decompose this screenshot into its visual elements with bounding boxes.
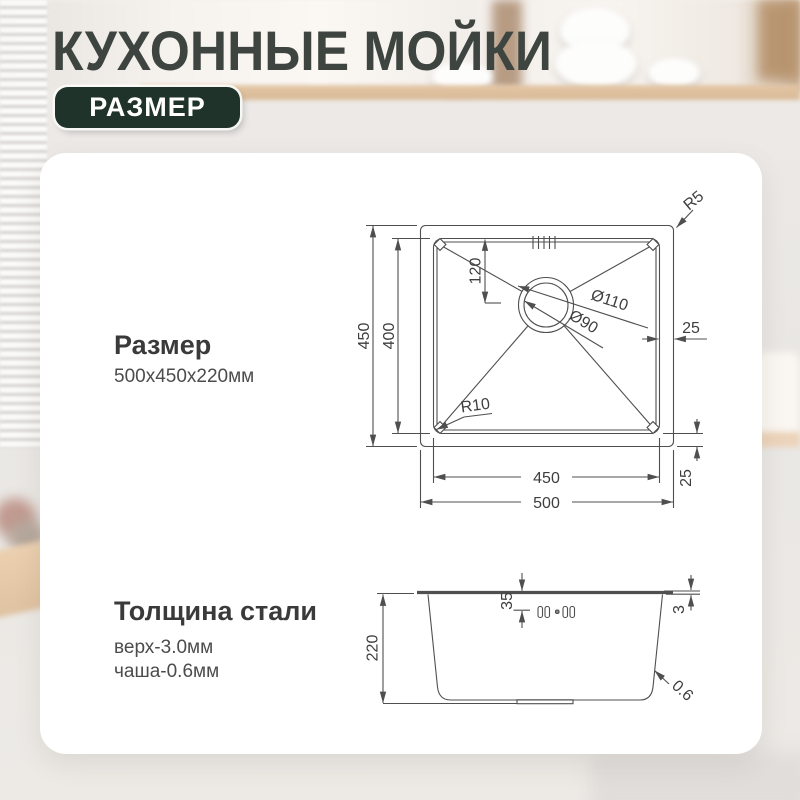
product-infographic: КУХОННЫЕ МОЙКИ РАЗМЕР Размер 500x450x220… — [0, 0, 800, 800]
dim-right-inset-label: 25 — [682, 320, 700, 337]
top-view-drawing: 450 400 120 25 R5 R10 Ø110 — [356, 188, 707, 512]
thickness-heading: Толщина стали — [114, 596, 317, 627]
thickness-top-value: верх-3.0мм — [114, 637, 213, 659]
dim-inner-width-label: 450 — [533, 470, 560, 487]
dim-corner-radius-inner-label: R10 — [460, 396, 492, 417]
dim-wall-thickness-label: 0.6 — [668, 677, 696, 705]
dim-drain-offset-label: 120 — [468, 258, 485, 285]
floor-shadow — [590, 752, 800, 800]
dim-rim-thickness-label: 3 — [671, 605, 688, 614]
dim-outer-height-label: 450 — [356, 323, 373, 350]
wood-cabinet-corner — [758, 0, 800, 80]
dim-rim-drop-label: 35 — [499, 592, 516, 610]
dim-inner-height-label: 400 — [381, 323, 398, 350]
bowl-decor — [648, 58, 700, 88]
dim-corner-radius-outer-label: R5 — [681, 188, 708, 214]
side-view-drawing: 220 35 3 0.6 — [365, 573, 701, 705]
thickness-bowl-value: чаша-0.6мм — [114, 661, 219, 683]
page-title: КУХОННЫЕ МОЙКИ — [52, 18, 552, 83]
dim-outer-width-label: 500 — [533, 495, 560, 512]
sink-outer-outline — [421, 226, 674, 447]
size-heading: Размер — [114, 330, 211, 361]
technical-drawing: 450 400 120 25 R5 R10 Ø110 — [340, 175, 760, 745]
size-value: 500x450x220мм — [114, 366, 254, 388]
drain-outer-circle — [519, 278, 574, 333]
dim-bottom-inset-label: 25 — [678, 469, 695, 487]
dim-height-label: 220 — [365, 635, 382, 662]
size-badge: РАЗМЕР — [55, 87, 240, 128]
bowl-decor — [555, 40, 637, 88]
faucet-holes-profile — [538, 607, 575, 618]
